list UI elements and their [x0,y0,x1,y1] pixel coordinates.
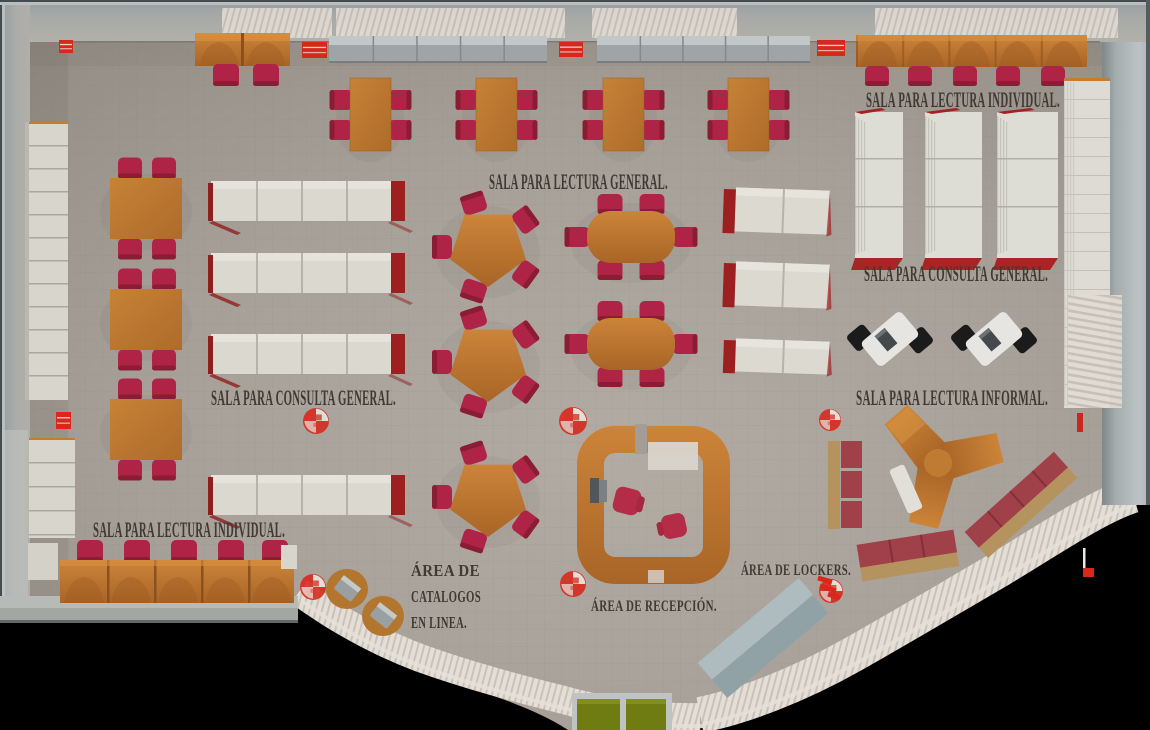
svg-text:SALA PARA LECTURA INFORMAL.: SALA PARA LECTURA INFORMAL. [856,385,1048,410]
svg-text:CATALOGOS: CATALOGOS [411,587,481,606]
svg-text:SALA PARA CONSULTA GENERAL.: SALA PARA CONSULTA GENERAL. [211,385,396,410]
svg-text:EN LINEA.: EN LINEA. [411,613,467,632]
svg-text:ÁREA DE RECEPCIÓN.: ÁREA DE RECEPCIÓN. [591,596,717,615]
svg-text:SALA PARA LECTURA INDIVIDUAL.: SALA PARA LECTURA INDIVIDUAL. [866,87,1060,112]
svg-text:SALA PARA LECTURA INDIVIDUAL.: SALA PARA LECTURA INDIVIDUAL. [93,517,285,542]
svg-text:ÁREA DE: ÁREA DE [411,561,480,580]
svg-text:ÁREA DE LOCKERS.: ÁREA DE LOCKERS. [741,560,851,579]
svg-text:SALA PARA CONSULTA GENERAL.: SALA PARA CONSULTA GENERAL. [864,261,1048,286]
svg-text:SALA PARA LECTURA GENERAL.: SALA PARA LECTURA GENERAL. [489,169,668,194]
